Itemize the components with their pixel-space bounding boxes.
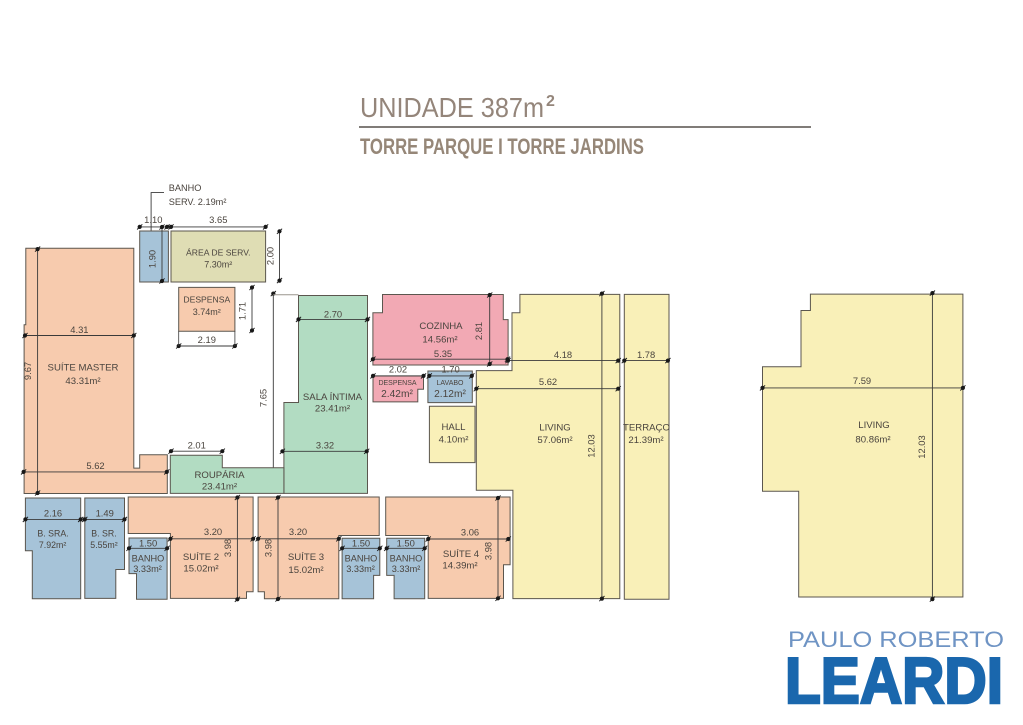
svg-text:7.30m²: 7.30m²	[204, 260, 232, 270]
svg-text:ROUPÁRIA: ROUPÁRIA	[194, 470, 245, 481]
svg-text:BANHO: BANHO	[345, 554, 378, 564]
svg-text:1.70: 1.70	[441, 364, 459, 375]
svg-text:4.18: 4.18	[554, 349, 572, 360]
svg-text:BANHO: BANHO	[169, 183, 202, 193]
svg-text:HALL: HALL	[442, 422, 467, 433]
svg-text:SUÍTE MASTER: SUÍTE MASTER	[48, 363, 119, 374]
svg-text:1.49: 1.49	[96, 507, 114, 518]
svg-text:2.19: 2.19	[198, 334, 216, 345]
svg-text:43.31m²: 43.31m²	[65, 376, 101, 387]
svg-text:1.71: 1.71	[237, 302, 248, 320]
svg-text:2.81: 2.81	[473, 322, 484, 340]
svg-text:SALA ÍNTIMA: SALA ÍNTIMA	[303, 392, 363, 403]
svg-text:5.62: 5.62	[539, 376, 557, 387]
svg-text:SERV. 2.19m²: SERV. 2.19m²	[169, 197, 227, 207]
svg-text:SUÍTE 2: SUÍTE 2	[183, 552, 219, 563]
svg-text:1.90: 1.90	[147, 250, 158, 268]
svg-text:3.74m²: 3.74m²	[193, 307, 221, 317]
svg-text:12.03: 12.03	[916, 435, 927, 458]
svg-text:BANHO: BANHO	[132, 554, 165, 564]
svg-text:1.50: 1.50	[397, 537, 415, 548]
svg-text:4.10m²: 4.10m²	[439, 435, 470, 446]
svg-text:3.20: 3.20	[204, 526, 222, 537]
svg-text:3.06: 3.06	[461, 527, 479, 538]
svg-text:7.92m²: 7.92m²	[39, 540, 66, 550]
svg-text:LEARDI: LEARDI	[785, 645, 1003, 717]
svg-text:ÁREA DE SERV.: ÁREA DE SERV.	[186, 248, 251, 258]
svg-text:SUÍTE 3: SUÍTE 3	[288, 552, 324, 563]
svg-text:4.31: 4.31	[70, 324, 88, 335]
svg-text:2.70: 2.70	[324, 308, 342, 319]
svg-text:12.03: 12.03	[586, 434, 597, 457]
svg-text:3.33m²: 3.33m²	[346, 564, 375, 574]
svg-text:UNIDADE 387m: UNIDADE 387m	[360, 92, 544, 123]
svg-text:SUÍTE 4: SUÍTE 4	[443, 549, 480, 560]
svg-text:21.39m²: 21.39m²	[628, 435, 664, 446]
svg-text:2.12m²: 2.12m²	[434, 389, 466, 400]
svg-text:3.20: 3.20	[289, 526, 307, 537]
svg-text:2.00: 2.00	[265, 247, 276, 265]
svg-text:LIVING: LIVING	[539, 423, 570, 434]
svg-text:5.35: 5.35	[434, 348, 452, 359]
svg-text:3.98: 3.98	[222, 539, 233, 557]
svg-text:BANHO: BANHO	[390, 554, 423, 564]
svg-text:5.62: 5.62	[86, 460, 104, 471]
svg-text:1.78: 1.78	[637, 349, 655, 360]
svg-text:1.50: 1.50	[352, 537, 370, 548]
svg-text:3.33m²: 3.33m²	[133, 564, 162, 574]
svg-text:3.65: 3.65	[209, 214, 227, 225]
svg-text:2.02: 2.02	[389, 364, 407, 375]
svg-text:3.32: 3.32	[316, 439, 334, 450]
svg-text:COZINHA: COZINHA	[419, 321, 463, 332]
svg-text:7.59: 7.59	[853, 375, 871, 386]
svg-text:57.06m²: 57.06m²	[537, 435, 573, 446]
svg-text:15.02m²: 15.02m²	[183, 564, 219, 575]
svg-text:3.98: 3.98	[263, 539, 274, 557]
svg-text:80.86m²: 80.86m²	[855, 435, 891, 446]
svg-text:1.50: 1.50	[139, 537, 157, 548]
svg-text:LIVING: LIVING	[858, 420, 889, 431]
svg-text:23.41m²: 23.41m²	[315, 404, 351, 415]
svg-text:5.55m²: 5.55m²	[90, 540, 117, 550]
svg-text:14.39m²: 14.39m²	[442, 561, 478, 572]
svg-text:DESPENSA: DESPENSA	[378, 380, 416, 387]
svg-text:15.02m²: 15.02m²	[288, 565, 324, 576]
svg-text:LAVABO: LAVABO	[437, 380, 465, 387]
svg-text:TERRAÇO: TERRAÇO	[623, 423, 670, 434]
svg-text:2.01: 2.01	[188, 440, 206, 451]
svg-text:B. SR.: B. SR.	[91, 529, 116, 539]
svg-text:9.67: 9.67	[22, 362, 33, 380]
svg-text:DESPENSA: DESPENSA	[183, 295, 230, 305]
svg-text:2.16: 2.16	[44, 507, 62, 518]
svg-text:23.41m²: 23.41m²	[202, 482, 238, 493]
svg-text:TORRE PARQUE I TORRE JARDINS: TORRE PARQUE I TORRE JARDINS	[360, 134, 644, 159]
svg-text:3.33m²: 3.33m²	[392, 564, 421, 574]
svg-text:3.98: 3.98	[483, 542, 494, 560]
svg-text:1.10: 1.10	[144, 214, 162, 225]
svg-text:7.65: 7.65	[258, 389, 269, 407]
svg-text:14.56m²: 14.56m²	[422, 335, 458, 346]
svg-text:B. SRA.: B. SRA.	[37, 529, 68, 539]
svg-text:2.42m²: 2.42m²	[381, 389, 413, 400]
svg-text:2: 2	[546, 93, 555, 110]
